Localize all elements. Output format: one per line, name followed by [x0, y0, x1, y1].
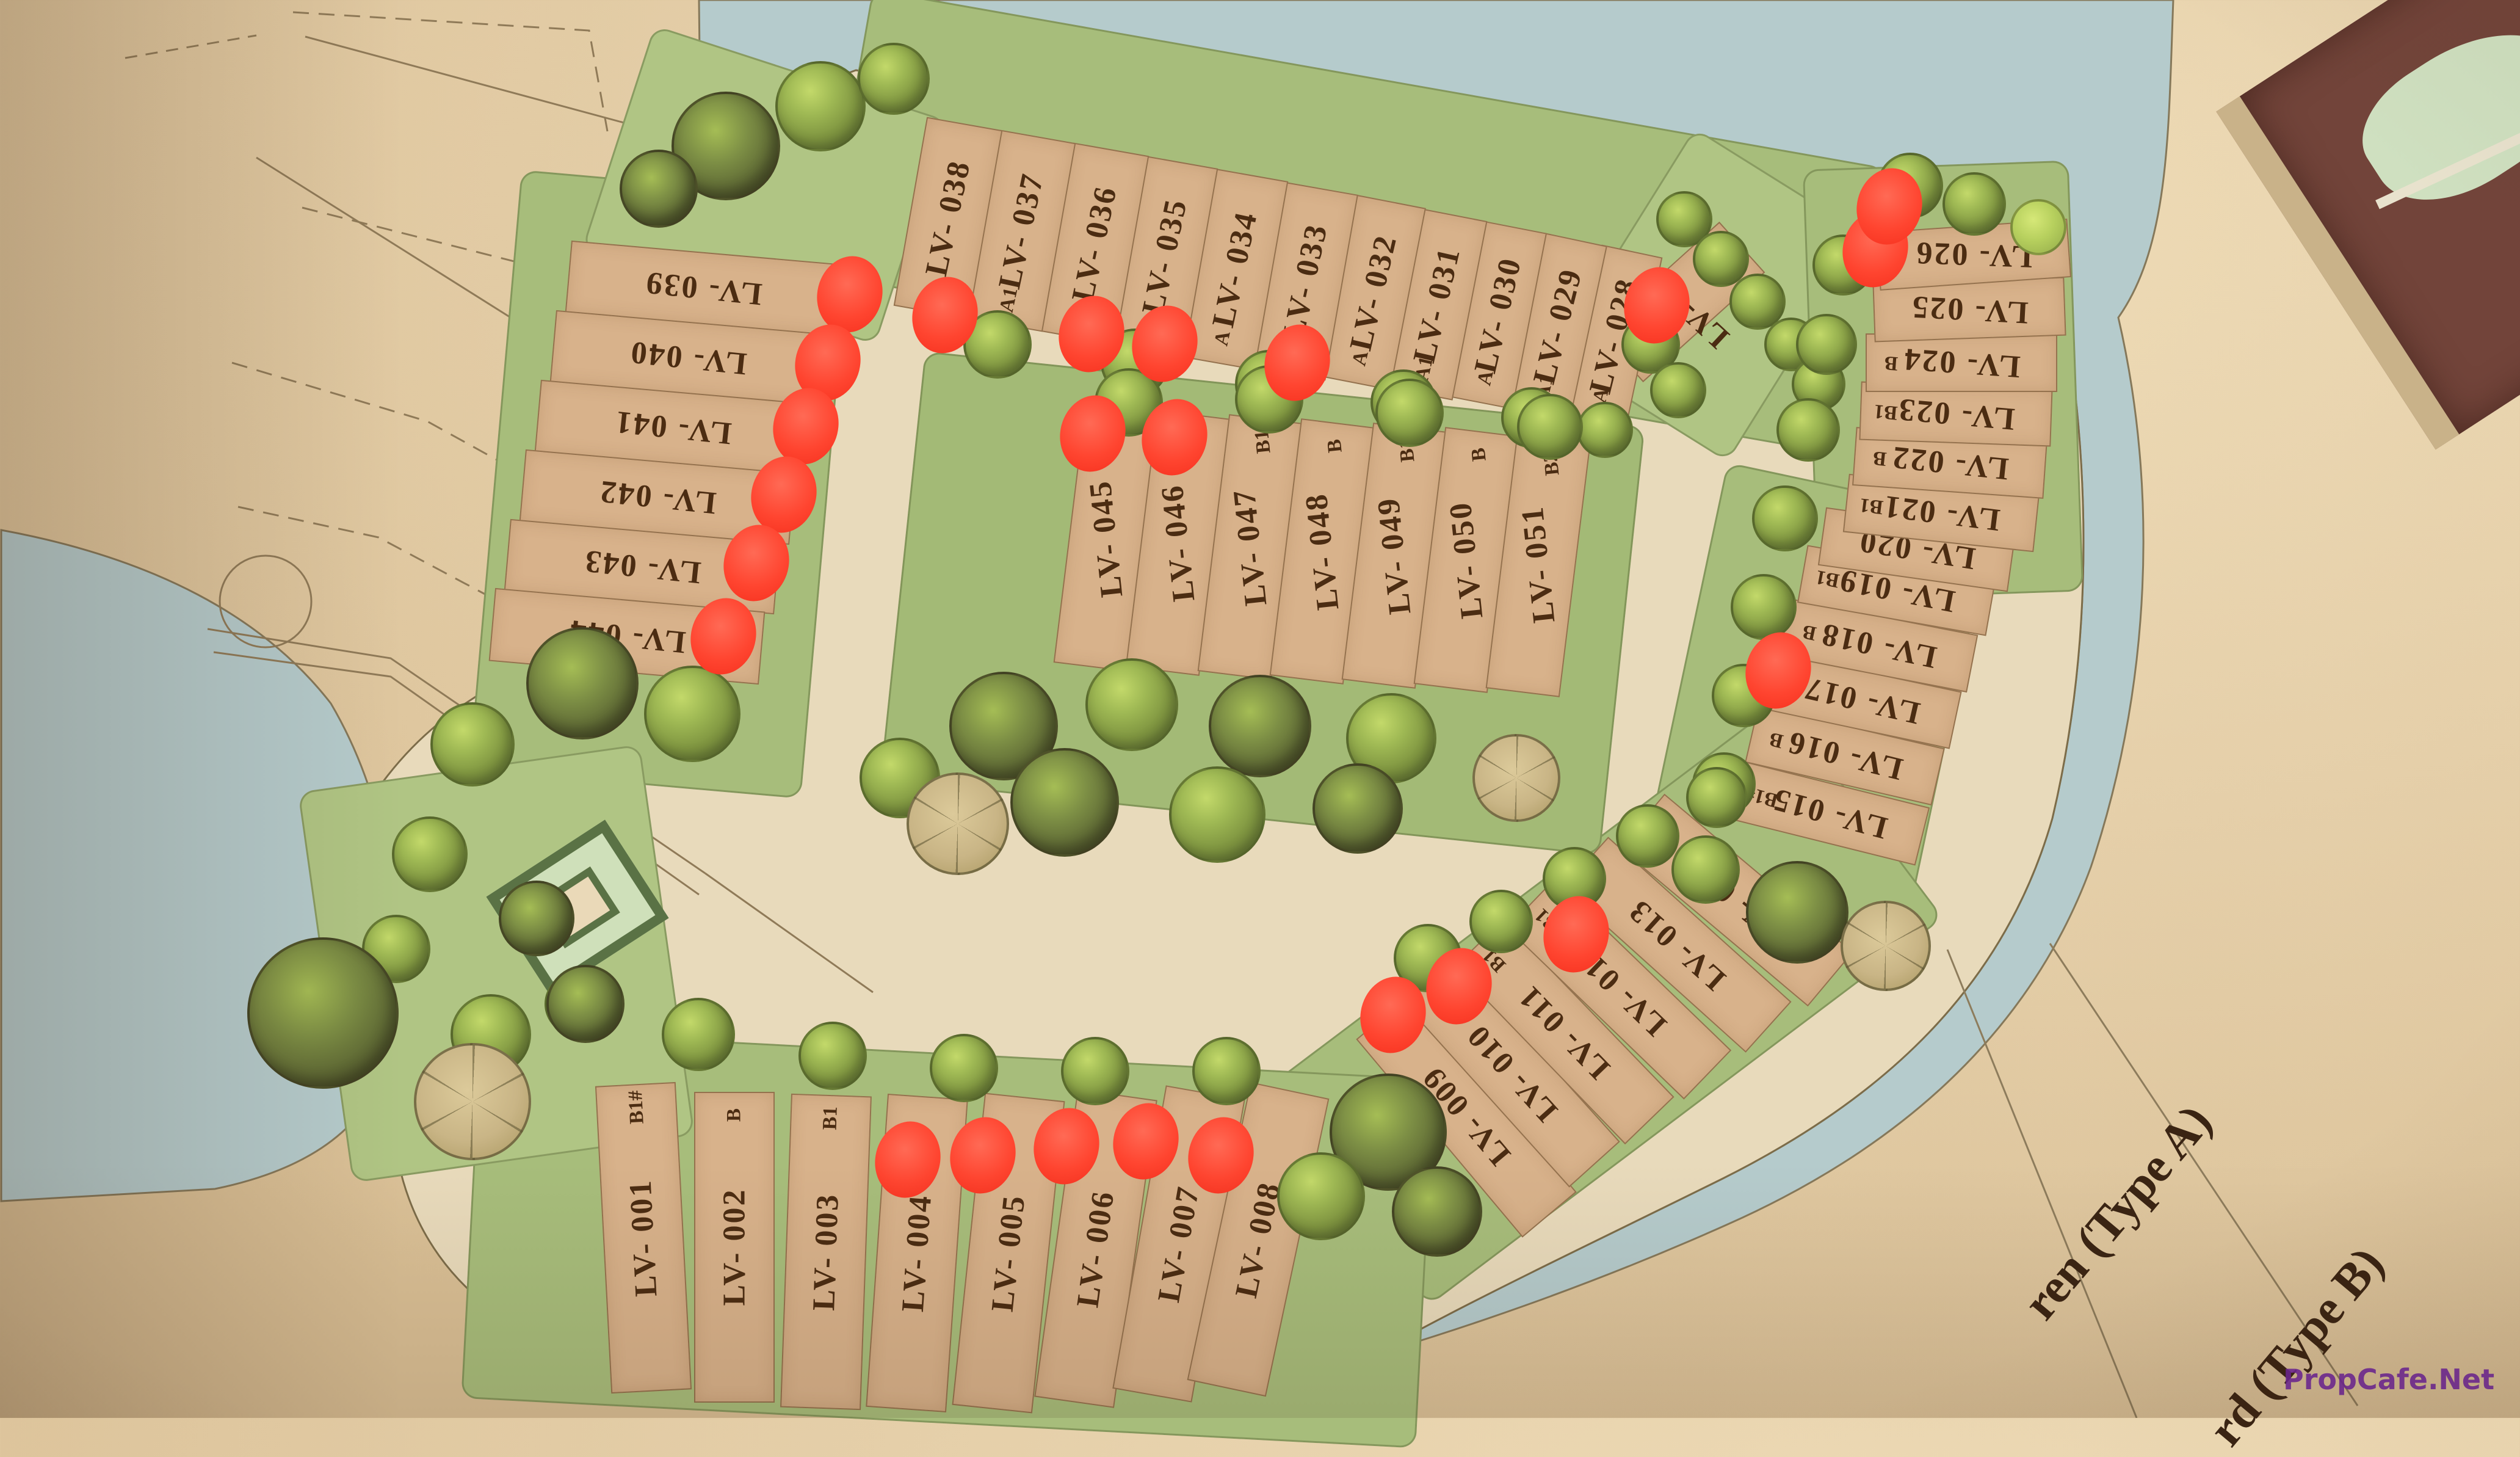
tree-icon	[1312, 763, 1403, 854]
lot-type-label: B	[1884, 351, 1899, 374]
lot-label: LV- 022	[1889, 439, 2010, 487]
lot-label: LV- 021	[1881, 488, 2002, 538]
lot-type-label: B	[1800, 620, 1818, 645]
lot-label: LV- 025	[1910, 288, 2029, 330]
lot-cell: LV- 003B1	[780, 1094, 872, 1410]
lot-type-label: B	[1323, 438, 1347, 454]
tree-icon	[1577, 402, 1633, 458]
lot-label: LV- 024	[1902, 341, 2022, 385]
tree-icon	[775, 61, 866, 151]
tree-icon	[1472, 734, 1560, 822]
tree-icon	[546, 965, 625, 1043]
lot-type-label: B1	[1873, 399, 1899, 424]
tree-icon	[1392, 1166, 1482, 1257]
lot-label: LV- 045	[1082, 478, 1131, 599]
tree-icon	[1010, 748, 1119, 857]
tree-icon	[1731, 574, 1797, 640]
lot-label: LV- 033	[1275, 220, 1335, 343]
lot-label: LV- 004	[895, 1193, 939, 1313]
tree-icon	[858, 43, 930, 115]
tree-icon	[644, 666, 740, 762]
tree-icon	[930, 1034, 998, 1102]
tree-icon	[907, 772, 1009, 875]
tree-icon	[499, 881, 574, 956]
tree-icon	[2010, 199, 2066, 255]
lot-type-label: B1	[1814, 565, 1841, 592]
tree-icon	[526, 627, 639, 739]
tree-icon	[1796, 314, 1857, 375]
tree-icon	[1686, 767, 1747, 828]
lot-label: LV- 007	[1151, 1183, 1207, 1305]
tree-icon	[1277, 1152, 1365, 1240]
tree-icon	[620, 150, 698, 228]
tree-icon	[1942, 172, 2006, 236]
tree-icon	[662, 998, 735, 1071]
lot-label: LV- 023	[1895, 391, 2016, 437]
lot-label: LV- 051	[1515, 504, 1563, 625]
tree-icon	[1469, 890, 1533, 953]
tree-icon	[414, 1043, 531, 1160]
lot-label: LV- 039	[643, 264, 764, 313]
tree-icon	[1192, 1037, 1261, 1105]
lot-cell: LV- 002B	[694, 1092, 775, 1403]
lot-type-label: B	[723, 1108, 746, 1121]
tree-icon	[430, 702, 515, 787]
lot-label: LV- 001	[622, 1178, 664, 1298]
lot-label: LV- 038	[918, 157, 978, 280]
tree-icon	[1209, 675, 1311, 777]
lot-type-label: B1	[1858, 493, 1885, 518]
lot-type-label: B	[1872, 446, 1888, 470]
lot-label: LV- 043	[582, 543, 703, 591]
lot-label: LV- 050	[1443, 500, 1491, 620]
tree-icon	[1061, 1037, 1129, 1105]
lot-label: LV- 047	[1226, 487, 1275, 608]
tree-icon	[1169, 766, 1265, 863]
lot-label: LV- 049	[1370, 495, 1419, 616]
tree-icon	[1375, 379, 1444, 447]
tree-icon	[1752, 485, 1818, 551]
tree-icon	[1085, 658, 1178, 751]
tree-icon	[1841, 901, 1931, 991]
lot-cell: LV- 024B	[1866, 333, 2057, 392]
lot-label: LV- 040	[628, 334, 748, 382]
tree-icon	[1650, 362, 1706, 418]
lot-type-label: A	[1210, 329, 1235, 348]
fragment-green-blob	[2341, 0, 2520, 230]
lot-label: LV- 046	[1154, 482, 1203, 603]
lot-label: LV- 032	[1343, 231, 1405, 354]
lot-type-label: B	[1468, 446, 1491, 462]
lot-label: LV- 041	[612, 404, 733, 452]
lot-label: LV- 003	[806, 1193, 846, 1312]
lot-label: LV- 005	[985, 1193, 1033, 1313]
lot-label: LV- 006	[1070, 1187, 1121, 1309]
tree-icon	[247, 937, 399, 1089]
lot-label: LV- 037	[991, 170, 1051, 292]
tree-icon	[392, 816, 468, 892]
lot-label: LV- 035	[1135, 195, 1195, 318]
lot-type-label: B1#	[625, 1090, 649, 1125]
lot-label: LV- 002	[717, 1188, 753, 1306]
tree-icon	[798, 1022, 867, 1090]
lot-label: LV- 034	[1205, 208, 1265, 331]
lot-type-label: B1	[819, 1106, 842, 1130]
lot-label: LV- 048	[1298, 491, 1347, 612]
site-plan-photo: LV- 001B1#LV- 002BLV- 003B1LV- 004LV- 00…	[0, 0, 2520, 1418]
tree-icon	[1517, 394, 1583, 460]
lot-label: LV- 042	[597, 473, 718, 521]
lot-cell: LV- 001B1#	[595, 1082, 692, 1393]
watermark: PropCafe.Net	[2283, 1363, 2494, 1396]
lot-type-label: B	[1767, 727, 1786, 752]
tree-icon	[1746, 861, 1848, 964]
tree-icon	[1616, 804, 1679, 868]
tree-icon	[1671, 835, 1740, 904]
lot-label: LV- 036	[1065, 183, 1124, 305]
tree-icon	[1776, 398, 1840, 462]
